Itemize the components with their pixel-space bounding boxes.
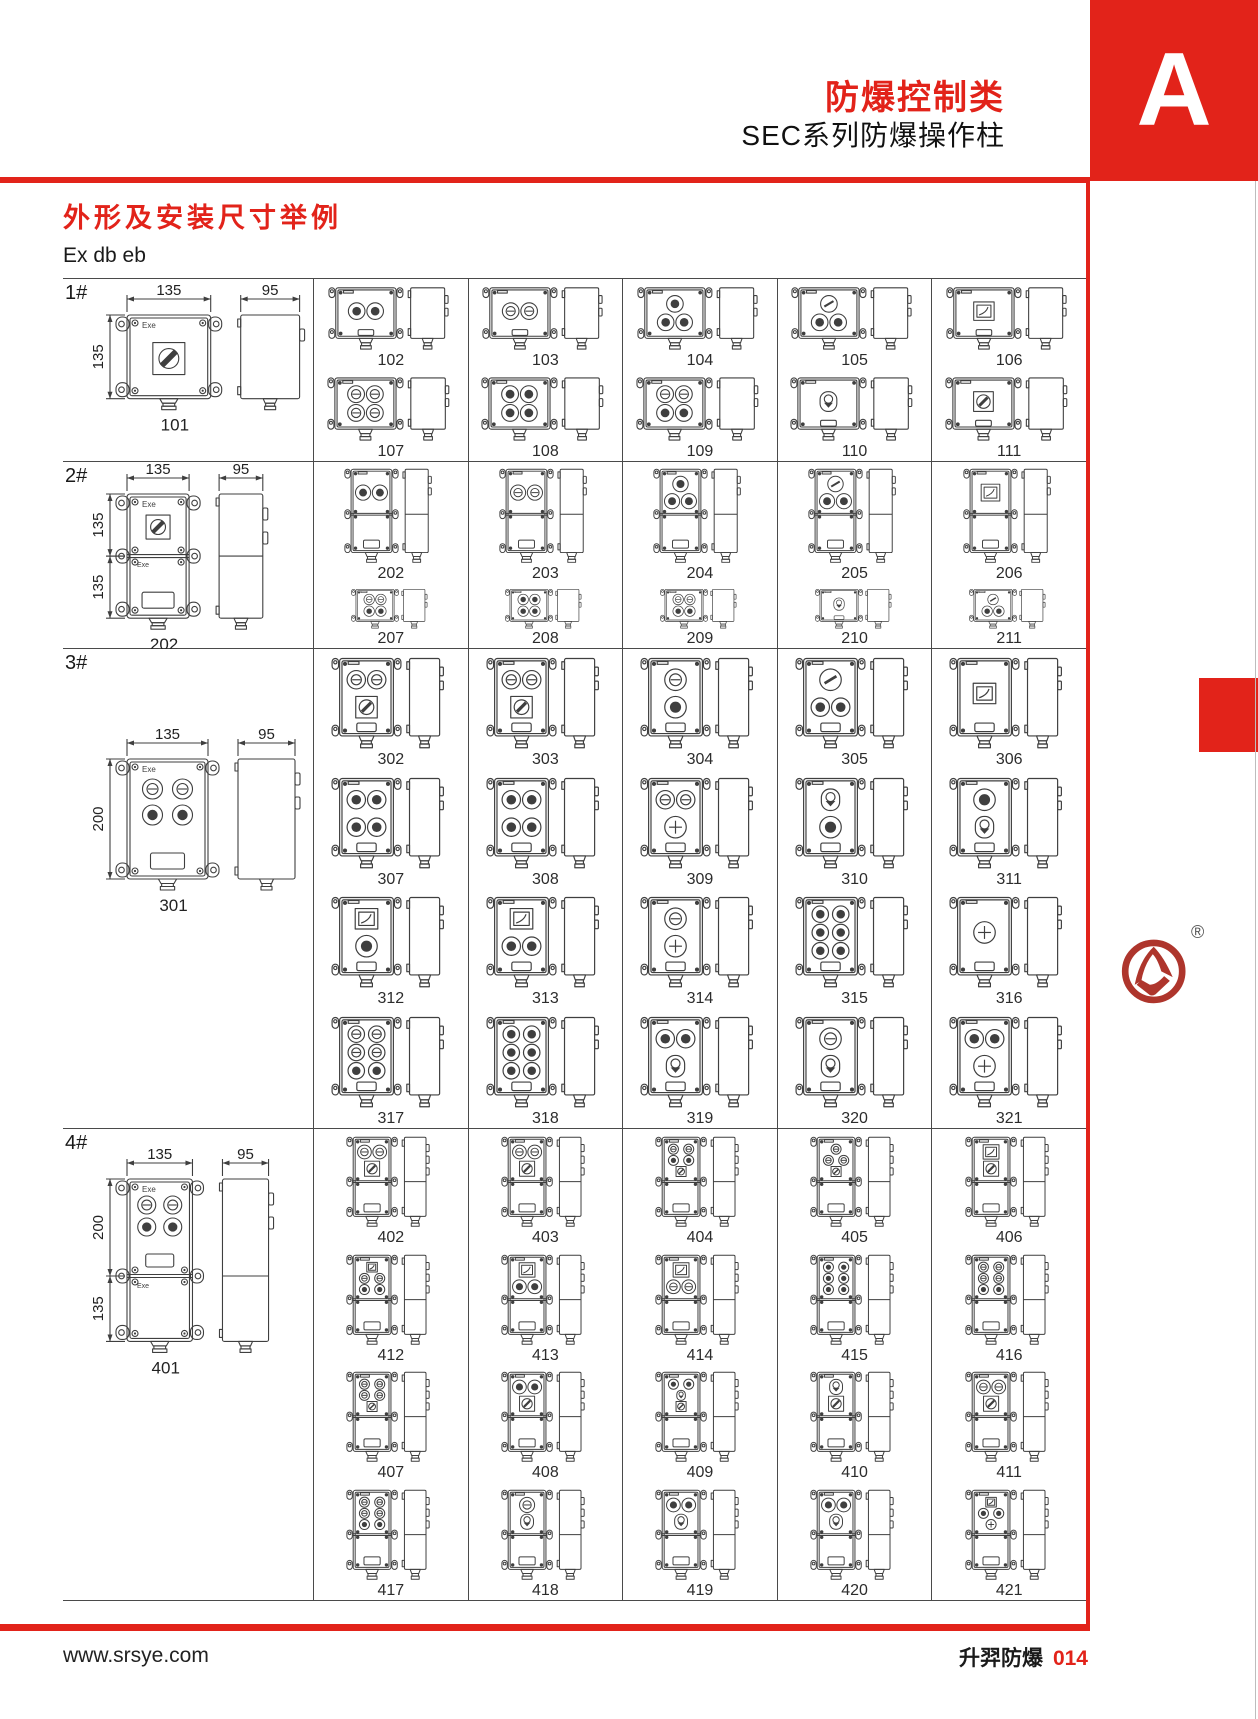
variant-313: 313 [486, 889, 605, 1009]
variant-number: 406 [996, 1229, 1023, 1246]
variant-column: 404414409419 [622, 1129, 777, 1600]
bottom-rule [0, 1624, 1090, 1631]
variant-106: 106 [946, 279, 1072, 370]
device-drawing [949, 890, 1068, 990]
device-drawing [660, 585, 740, 630]
dimension-cell-301: 3#13595200Exe301 [63, 649, 313, 1128]
variant-316: 316 [949, 889, 1068, 1009]
variant-204: 204 [653, 462, 746, 583]
variant-403: 403 [501, 1129, 590, 1247]
variant-109: 109 [636, 370, 764, 462]
variant-number: 405 [841, 1229, 868, 1246]
device-drawing [501, 1131, 590, 1229]
variant-number: 102 [377, 352, 404, 369]
variant-412: 412 [346, 1247, 435, 1365]
variant-number: 420 [841, 1582, 868, 1599]
variant-number: 414 [687, 1347, 714, 1364]
variant-number: 208 [532, 630, 559, 647]
variant-column: 204209 [622, 462, 777, 648]
device-drawing [949, 1010, 1068, 1110]
svg-text:135: 135 [90, 344, 107, 369]
variant-number: 403 [532, 1229, 559, 1246]
variant-414: 414 [655, 1247, 744, 1365]
variant-number: 304 [687, 751, 714, 768]
variant-number: 413 [532, 1347, 559, 1364]
variant-number: 109 [687, 443, 714, 460]
variant-318: 318 [486, 1008, 605, 1128]
variant-number: 313 [532, 990, 559, 1007]
device-drawing [346, 1131, 435, 1229]
variant-number: 202 [377, 565, 404, 582]
device-drawing [949, 771, 1068, 871]
device-drawing [327, 371, 455, 443]
device-drawing [810, 1366, 899, 1464]
device-drawing [810, 1484, 899, 1582]
variant-311: 311 [949, 769, 1068, 889]
variant-number: 309 [687, 871, 714, 888]
device-drawing [655, 1131, 744, 1229]
variant-205: 205 [808, 462, 901, 583]
variant-103: 103 [482, 279, 608, 370]
variant-number: 110 [842, 443, 868, 460]
device-drawing [501, 1366, 590, 1464]
variant-column: 102107 [313, 279, 468, 461]
header-series: SEC系列防爆操作柱 [741, 114, 1005, 154]
variant-406: 406 [965, 1129, 1054, 1247]
svg-text:135: 135 [146, 462, 171, 478]
device-drawing [481, 371, 609, 443]
svg-text:301: 301 [159, 896, 187, 915]
dimension-cell-202: 2#13595135135ExeExe202 [63, 462, 313, 648]
device-drawing [653, 463, 746, 565]
device-drawing [640, 1010, 759, 1110]
variant-number: 105 [841, 352, 868, 369]
variant-number: 415 [841, 1347, 868, 1364]
device-drawing [808, 463, 901, 565]
device-drawing [501, 1484, 590, 1582]
device-drawing [810, 1249, 899, 1347]
spec-table: 1#13595135Exe101102107103108104109105110… [63, 278, 1086, 1601]
variant-307: 307 [331, 769, 450, 889]
variant-number: 421 [996, 1582, 1023, 1599]
size-label: 1# [65, 282, 87, 305]
svg-text:Exe: Exe [142, 500, 156, 509]
variant-number: 412 [377, 1347, 404, 1364]
variant-number: 315 [841, 990, 868, 1007]
variant-105: 105 [791, 279, 917, 370]
variant-417: 417 [346, 1482, 435, 1600]
size-label: 2# [65, 465, 87, 488]
svg-text:401: 401 [152, 1358, 180, 1377]
variant-column: 105110 [777, 279, 932, 461]
svg-text:101: 101 [161, 416, 189, 435]
device-drawing [331, 651, 450, 751]
variant-number: 418 [532, 1582, 559, 1599]
variant-number: 207 [377, 630, 404, 647]
size-label: 3# [65, 652, 87, 675]
variant-419: 419 [655, 1482, 744, 1600]
svg-text:95: 95 [258, 726, 275, 743]
device-drawing [637, 281, 763, 352]
variant-number: 111 [997, 443, 1021, 460]
device-drawing [945, 371, 1073, 443]
variant-number: 308 [532, 871, 559, 888]
device-drawing [486, 1010, 605, 1110]
variant-108: 108 [481, 370, 609, 462]
variant-number: 211 [996, 630, 1022, 647]
variant-number: 104 [687, 352, 714, 369]
variant-number: 307 [377, 871, 404, 888]
variant-415: 415 [810, 1247, 899, 1365]
device-drawing [965, 1366, 1054, 1464]
variant-column: 305310315320 [777, 649, 932, 1128]
svg-text:202: 202 [150, 635, 178, 649]
variant-number: 408 [532, 1464, 559, 1481]
variant-310: 310 [795, 769, 914, 889]
svg-text:135: 135 [147, 1146, 172, 1163]
variant-column: 206211 [931, 462, 1086, 648]
device-drawing [965, 1249, 1054, 1347]
variant-308: 308 [486, 769, 605, 889]
variant-number: 302 [377, 751, 404, 768]
variant-207: 207 [351, 583, 431, 648]
variant-number: 402 [377, 1229, 404, 1246]
device-drawing [346, 1249, 435, 1347]
svg-text:95: 95 [237, 1146, 254, 1163]
device-drawing [328, 281, 454, 352]
section-2: 2#13595135135ExeExe202202207203208204209… [63, 462, 1086, 649]
variant-number: 204 [687, 565, 714, 582]
device-drawing [655, 1249, 744, 1347]
variant-209: 209 [660, 583, 740, 648]
variant-number: 303 [532, 751, 559, 768]
variant-202: 202 [344, 462, 437, 583]
variant-314: 314 [640, 889, 759, 1009]
variant-number: 310 [841, 871, 868, 888]
device-drawing [486, 651, 605, 751]
variant-column: 104109 [622, 279, 777, 461]
variant-303: 303 [486, 649, 605, 769]
variant-402: 402 [346, 1129, 435, 1247]
variant-110: 110 [790, 370, 918, 462]
variant-312: 312 [331, 889, 450, 1009]
variant-320: 320 [795, 1008, 914, 1128]
device-drawing [640, 890, 759, 990]
device-drawing [965, 1131, 1054, 1229]
dimension-drawing: 13595200Exe301 [63, 649, 313, 1129]
device-drawing [482, 281, 608, 352]
variant-number: 410 [841, 1464, 868, 1481]
device-drawing [486, 890, 605, 990]
variant-206: 206 [963, 462, 1056, 583]
device-drawing [795, 1010, 914, 1110]
device-drawing [969, 585, 1049, 630]
side-rule [1086, 177, 1090, 1631]
svg-text:95: 95 [262, 282, 279, 299]
device-drawing [795, 771, 914, 871]
variant-number: 312 [377, 990, 404, 1007]
variant-number: 419 [687, 1582, 714, 1599]
variant-number: 314 [687, 990, 714, 1007]
device-drawing [949, 651, 1068, 751]
variant-102: 102 [328, 279, 454, 370]
svg-text:95: 95 [233, 462, 250, 478]
variant-107: 107 [327, 370, 455, 462]
variant-number: 407 [377, 1464, 404, 1481]
variant-317: 317 [331, 1008, 450, 1128]
accent-square [1199, 678, 1258, 752]
variant-column: 306311316321 [931, 649, 1086, 1128]
variant-column: 304309314319 [622, 649, 777, 1128]
footer-brand: 升羿防爆 [959, 1647, 1043, 1670]
variant-number: 107 [377, 443, 404, 460]
svg-text:Exe: Exe [142, 1185, 156, 1194]
variant-203: 203 [499, 462, 592, 583]
header-category: 防爆控制类 [825, 70, 1005, 119]
footer-brand-block: 升羿防爆014 [959, 1642, 1088, 1672]
svg-text:135: 135 [90, 513, 107, 538]
variant-309: 309 [640, 769, 759, 889]
dimension-drawing: 13595135Exe101 [63, 279, 313, 462]
variant-421: 421 [965, 1482, 1054, 1600]
device-drawing [346, 1484, 435, 1582]
registered-mark: ® [1191, 922, 1204, 943]
svg-text:135: 135 [90, 575, 107, 600]
device-drawing [655, 1366, 744, 1464]
svg-text:135: 135 [90, 1296, 107, 1321]
footer-website: www.srsye.com [63, 1644, 209, 1668]
variant-319: 319 [640, 1008, 759, 1128]
variant-number: 306 [996, 751, 1023, 768]
variant-111: 111 [945, 370, 1073, 462]
size-label: 4# [65, 1132, 87, 1155]
protection-marking: Ex db eb [63, 244, 146, 268]
variant-column: 202207 [313, 462, 468, 648]
variant-404: 404 [655, 1129, 744, 1247]
page-edge-line [1255, 181, 1256, 1719]
device-drawing [963, 463, 1056, 565]
variant-column: 103108 [468, 279, 623, 461]
variant-number: 108 [532, 443, 559, 460]
variant-number: 411 [996, 1464, 1022, 1481]
device-drawing [636, 371, 764, 443]
svg-text:135: 135 [156, 282, 181, 299]
svg-text:200: 200 [90, 806, 107, 831]
variant-column: 405415410420 [777, 1129, 932, 1600]
variant-number: 316 [996, 990, 1023, 1007]
section-4: 4#13595200135ExeExe401402412407417403413… [63, 1129, 1086, 1601]
device-drawing [505, 585, 585, 630]
section-1: 1#13595135Exe101102107103108104109105110… [63, 279, 1086, 462]
device-drawing [810, 1131, 899, 1229]
device-drawing [331, 771, 450, 871]
variant-number: 106 [996, 352, 1023, 369]
svg-text:135: 135 [155, 726, 180, 743]
variant-408: 408 [501, 1365, 590, 1483]
variant-number: 206 [996, 565, 1023, 582]
variant-304: 304 [640, 649, 759, 769]
variant-418: 418 [501, 1482, 590, 1600]
variant-405: 405 [810, 1129, 899, 1247]
top-rule [0, 177, 1086, 183]
variant-number: 209 [687, 630, 714, 647]
variant-number: 305 [841, 751, 868, 768]
catalog-page: 防爆控制类 SEC系列防爆操作柱 A 外形及安装尺寸举例 Ex db eb 1#… [0, 0, 1258, 1719]
section-3: 3#13595200Exe301302307312317303308313318… [63, 649, 1086, 1129]
device-drawing [331, 1010, 450, 1110]
variant-number: 409 [687, 1464, 714, 1481]
dimension-drawing: 13595200135ExeExe401 [63, 1129, 313, 1601]
variant-number: 311 [996, 871, 1022, 888]
device-drawing [795, 890, 914, 990]
variant-104: 104 [637, 279, 763, 370]
variant-column: 402412407417 [313, 1129, 468, 1600]
variant-number: 103 [532, 352, 559, 369]
variant-column: 203208 [468, 462, 623, 648]
dimension-cell-401: 4#13595200135ExeExe401 [63, 1129, 313, 1600]
variant-413: 413 [501, 1247, 590, 1365]
device-drawing [790, 371, 918, 443]
variant-number: 320 [841, 1110, 868, 1127]
variant-number: 417 [377, 1582, 404, 1599]
device-drawing [499, 463, 592, 565]
device-drawing [486, 771, 605, 871]
variant-208: 208 [505, 583, 585, 648]
device-drawing [331, 890, 450, 990]
variant-302: 302 [331, 649, 450, 769]
device-drawing [640, 651, 759, 751]
variant-column: 406416411421 [931, 1129, 1086, 1600]
variant-number: 317 [377, 1110, 404, 1127]
variant-416: 416 [965, 1247, 1054, 1365]
svg-text:Exe: Exe [142, 765, 156, 774]
variant-211: 211 [969, 583, 1049, 648]
variant-321: 321 [949, 1008, 1068, 1128]
svg-text:Exe: Exe [137, 562, 149, 569]
variant-210: 210 [815, 583, 895, 648]
variant-number: 321 [996, 1110, 1023, 1127]
variant-315: 315 [795, 889, 914, 1009]
device-drawing [815, 585, 895, 630]
dimension-drawing: 13595135135ExeExe202 [63, 462, 313, 649]
device-drawing [791, 281, 917, 352]
variant-number: 203 [532, 565, 559, 582]
variant-411: 411 [965, 1365, 1054, 1483]
device-drawing [351, 585, 431, 630]
variant-410: 410 [810, 1365, 899, 1483]
device-drawing [946, 281, 1072, 352]
variant-column: 302307312317 [313, 649, 468, 1128]
variant-number: 416 [996, 1347, 1023, 1364]
variant-306: 306 [949, 649, 1068, 769]
variant-420: 420 [810, 1482, 899, 1600]
variant-407: 407 [346, 1365, 435, 1483]
device-drawing [655, 1484, 744, 1582]
variant-column: 303308313318 [468, 649, 623, 1128]
footer-page-number: 014 [1053, 1647, 1088, 1670]
page-section-title: 外形及安装尺寸举例 [63, 196, 342, 235]
variant-number: 205 [841, 565, 868, 582]
variant-305: 305 [795, 649, 914, 769]
device-drawing [965, 1484, 1054, 1582]
variant-column: 205210 [777, 462, 932, 648]
variant-number: 210 [841, 630, 868, 647]
variant-number: 318 [532, 1110, 559, 1127]
variant-column: 403413408418 [468, 1129, 623, 1600]
variant-number: 319 [687, 1110, 714, 1127]
svg-text:200: 200 [90, 1215, 107, 1240]
device-drawing [640, 771, 759, 871]
svg-text:Exe: Exe [142, 321, 156, 330]
variant-409: 409 [655, 1365, 744, 1483]
device-drawing [344, 463, 437, 565]
device-drawing [795, 651, 914, 751]
device-drawing [346, 1366, 435, 1464]
section-tab-letter: A [1090, 0, 1258, 181]
variant-number: 404 [687, 1229, 714, 1246]
dimension-cell-101: 1#13595135Exe101 [63, 279, 313, 461]
svg-text:Exe: Exe [137, 1283, 149, 1290]
variant-column: 106111 [931, 279, 1086, 461]
device-drawing [501, 1249, 590, 1347]
